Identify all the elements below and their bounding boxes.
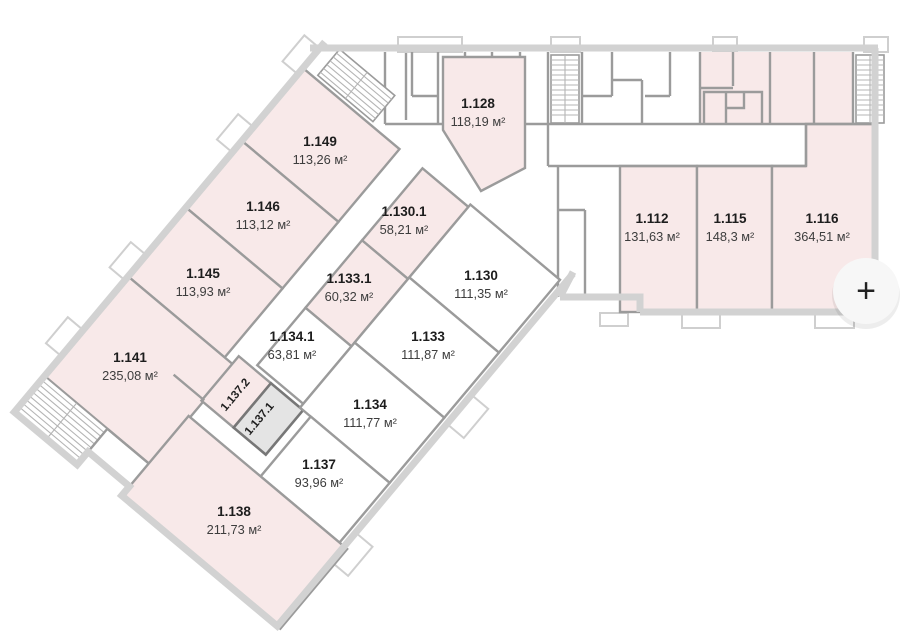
room-area-label: 148,3 м² — [706, 229, 755, 244]
room-area-label: 63,81 м² — [268, 347, 317, 362]
room-area-label: 118,19 м² — [451, 114, 507, 129]
room-area-label: 211,73 м² — [207, 522, 263, 537]
room-id-label: 1.145 — [186, 266, 220, 281]
staircase-icon — [856, 55, 884, 123]
floor-plan: 1.128 118,19 м² 1.149 113,26 м² 1.146 11… — [0, 0, 913, 633]
room-id-label: 1.133 — [411, 329, 445, 344]
zoom-in-button[interactable]: + — [832, 258, 900, 329]
room-area-label: 113,93 м² — [176, 284, 232, 299]
room-id-label: 1.130 — [464, 268, 498, 283]
room-id-label: 1.112 — [635, 211, 668, 226]
room-area-label: 364,51 м² — [794, 229, 850, 244]
room-area-label: 131,63 м² — [624, 229, 680, 244]
room-area-label: 113,26 м² — [293, 152, 349, 167]
room-area-label: 235,08 м² — [102, 368, 158, 383]
staircase-icon — [551, 55, 579, 123]
room-area-label: 111,87 м² — [401, 347, 456, 362]
room-id-label: 1.130.1 — [381, 204, 427, 219]
room-area-label: 113,12 м² — [236, 217, 292, 232]
plus-icon[interactable]: + — [856, 272, 876, 310]
room-area-label: 60,32 м² — [325, 289, 374, 304]
room-id-label: 1.134.1 — [269, 329, 315, 344]
room-id-label: 1.116 — [805, 211, 839, 226]
room-area-label: 58,21 м² — [380, 222, 429, 237]
floor-plan-viewer: 1.128 118,19 м² 1.149 113,26 м² 1.146 11… — [0, 0, 913, 633]
room-id-label: 1.128 — [461, 96, 495, 111]
room-area-label: 93,96 м² — [295, 475, 344, 490]
room-id-label: 1.141 — [113, 350, 147, 365]
room-id-label: 1.137 — [302, 457, 336, 472]
room-area-label: 111,35 м² — [454, 286, 509, 301]
room-id-label: 1.134 — [353, 397, 387, 412]
room-id-label: 1.133.1 — [326, 271, 372, 286]
room-id-label: 1.146 — [246, 199, 280, 214]
room-id-label: 1.115 — [713, 211, 747, 226]
room-area-label: 111,77 м² — [343, 415, 398, 430]
room-id-label: 1.149 — [303, 134, 337, 149]
room-id-label: 1.138 — [217, 504, 251, 519]
